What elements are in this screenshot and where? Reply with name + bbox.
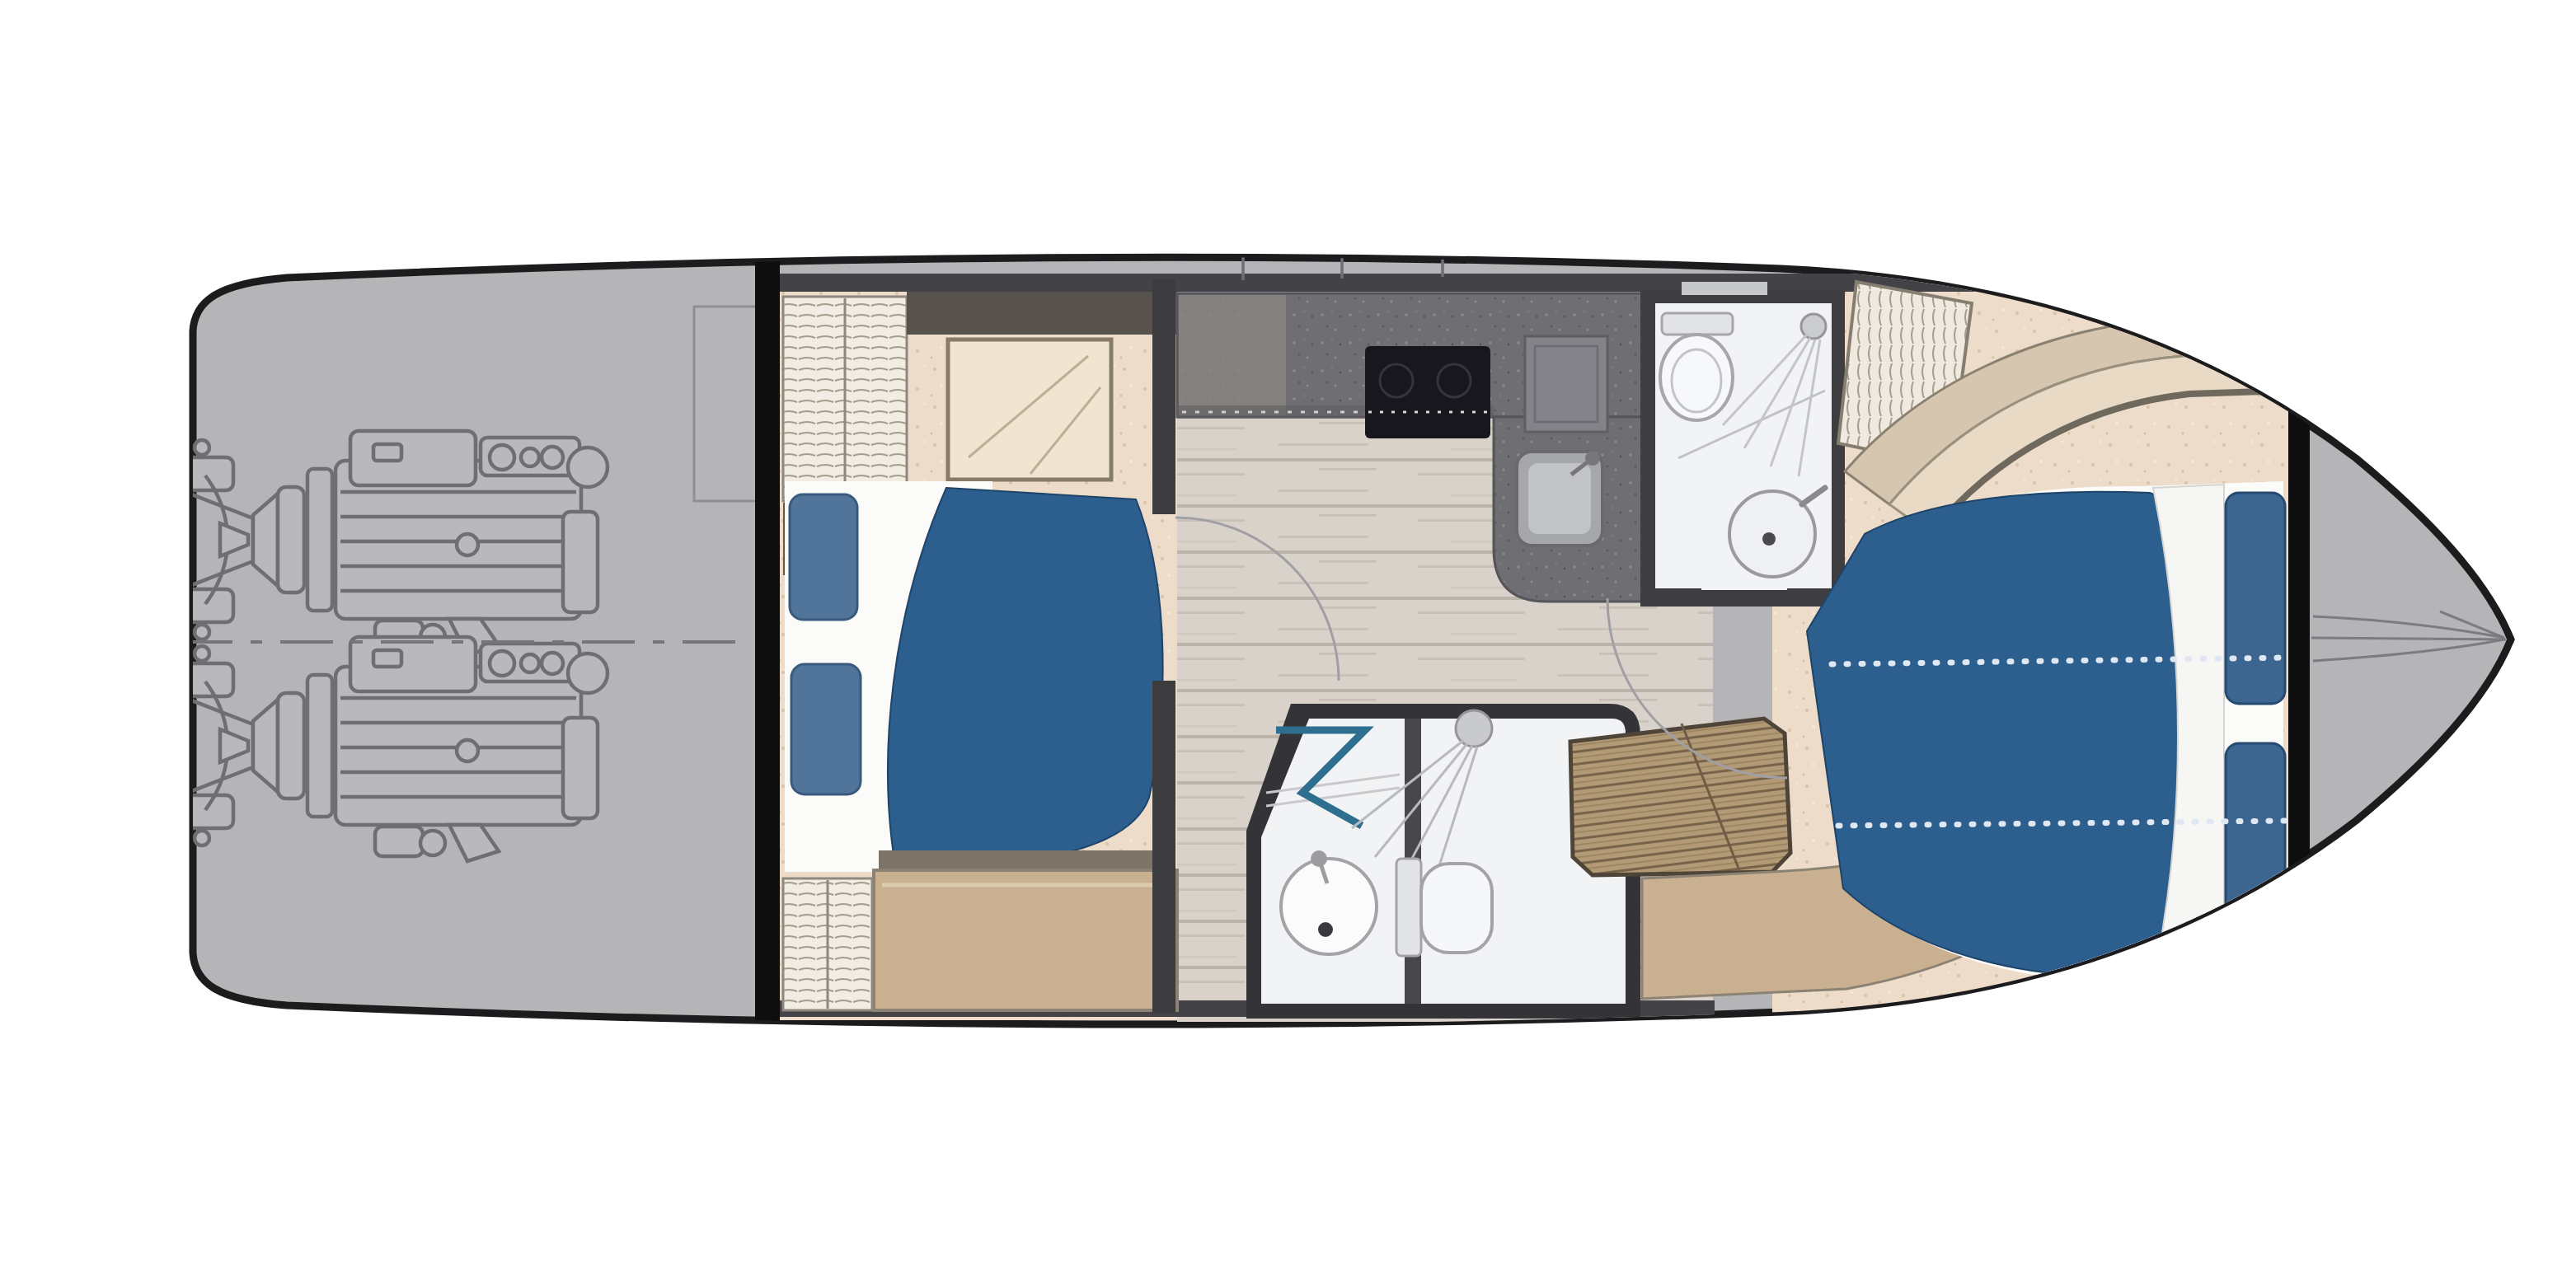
aft-bed-pillow-upper xyxy=(790,494,857,620)
yacht-floor-plan xyxy=(0,0,2576,1288)
aft-seat-cushion xyxy=(948,340,1111,480)
floor-plan-canvas xyxy=(0,0,2576,1288)
aft-bed-duvet xyxy=(888,488,1163,865)
aft-cabin-wall-upper xyxy=(1152,279,1175,514)
aft-niche-wall xyxy=(907,292,1177,335)
galley-sink-basin xyxy=(1528,463,1591,534)
mid-head-sink xyxy=(1281,859,1377,954)
vberth-pillow-lower xyxy=(2226,743,2285,959)
aft-bench-seat xyxy=(874,870,1177,1010)
forward-head-window xyxy=(1682,282,1767,295)
aft-cabin-wall-lower xyxy=(1152,681,1175,1014)
mid-head-sink-drain xyxy=(1318,922,1333,937)
interior xyxy=(755,247,2310,1038)
aft-bed-pillow-lower xyxy=(791,664,861,794)
forward-toilet-tank xyxy=(1662,313,1733,335)
galley-cabinet-left xyxy=(1179,295,1286,415)
vberth-pillow-upper xyxy=(2226,493,2285,704)
forward-head-wall-bottom-left xyxy=(1640,588,1701,607)
top-interior-wall xyxy=(780,274,2288,292)
forward-bulkhead xyxy=(2288,372,2310,920)
vberth-duvet xyxy=(1807,492,2203,977)
mid-head-toilet-tank xyxy=(1396,859,1421,956)
mid-head-toilet-bowl xyxy=(1421,864,1492,953)
forward-head-sink-drain xyxy=(1762,532,1776,546)
galley-counter-hatch xyxy=(1525,336,1607,432)
aft-bulkhead xyxy=(755,247,780,1038)
